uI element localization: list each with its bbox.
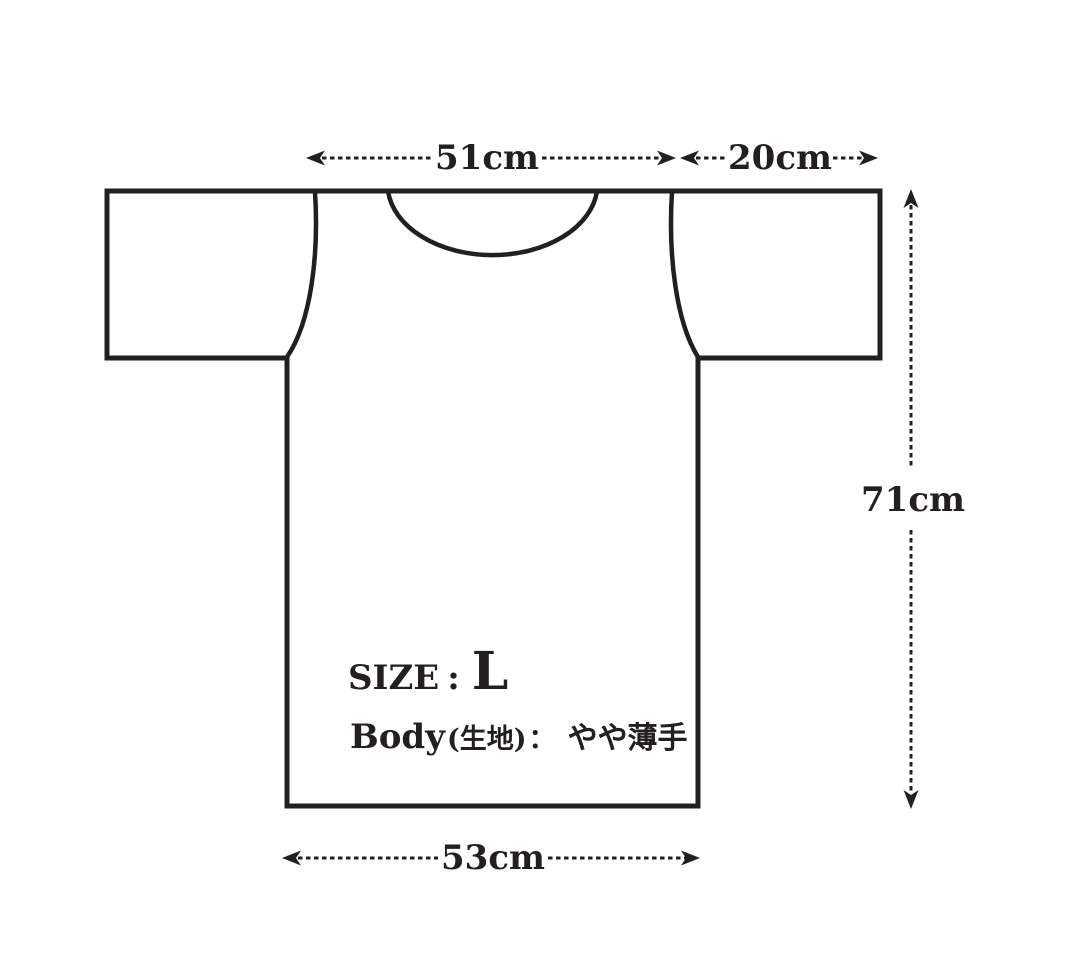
arrowhead-right — [681, 851, 700, 866]
arrowhead-down — [904, 790, 919, 809]
size-colon: : — [447, 658, 460, 698]
body-width-label: 53cm — [441, 838, 545, 878]
size-diagram-canvas: 51cm 20cm 71cm 53cm S — [0, 0, 1080, 965]
neckline-curve — [388, 191, 597, 255]
right-armhole-seam — [671, 192, 698, 357]
shoulder-width-label: 51cm — [435, 138, 539, 178]
size-label: SIZE — [348, 658, 439, 698]
size-value: L — [472, 641, 509, 702]
body-width-dimension: 53cm — [282, 838, 700, 878]
sleeve-length-label: 20cm — [728, 138, 832, 178]
tshirt-body-outline — [107, 191, 880, 806]
left-armhole-seam — [287, 192, 316, 357]
fabric-colon: ： — [529, 724, 556, 755]
fabric-sublabel: (生地) — [447, 724, 527, 755]
body-length-label: 71cm — [861, 480, 965, 520]
arrowhead-right — [657, 151, 676, 166]
size-diagram-page: 51cm 20cm 71cm 53cm S — [0, 0, 1080, 965]
tshirt-outline — [107, 191, 880, 806]
arrowhead-right — [859, 151, 878, 166]
fabric-label: Body — [350, 717, 446, 757]
shoulder-width-dimension: 51cm — [306, 138, 676, 178]
sleeve-length-dimension: 20cm — [680, 138, 878, 178]
size-line: SIZE:L — [348, 641, 508, 702]
fabric-value: やや薄手 — [568, 721, 688, 756]
fabric-line: Body(生地)：やや薄手 — [350, 717, 688, 757]
body-length-dimension: 71cm — [861, 189, 965, 809]
